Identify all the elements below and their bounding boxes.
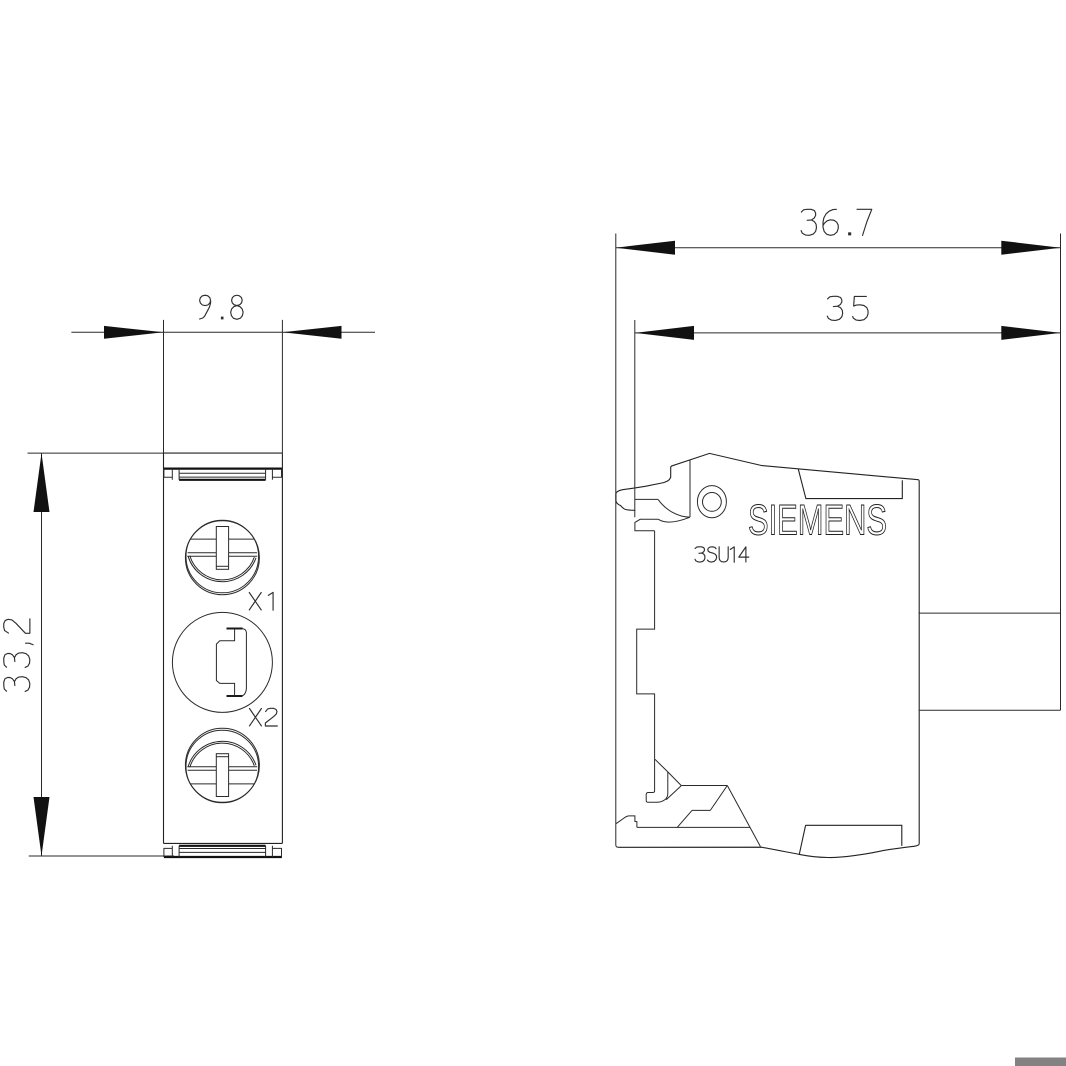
svg-text:SIEMENS: SIEMENS	[748, 497, 887, 545]
